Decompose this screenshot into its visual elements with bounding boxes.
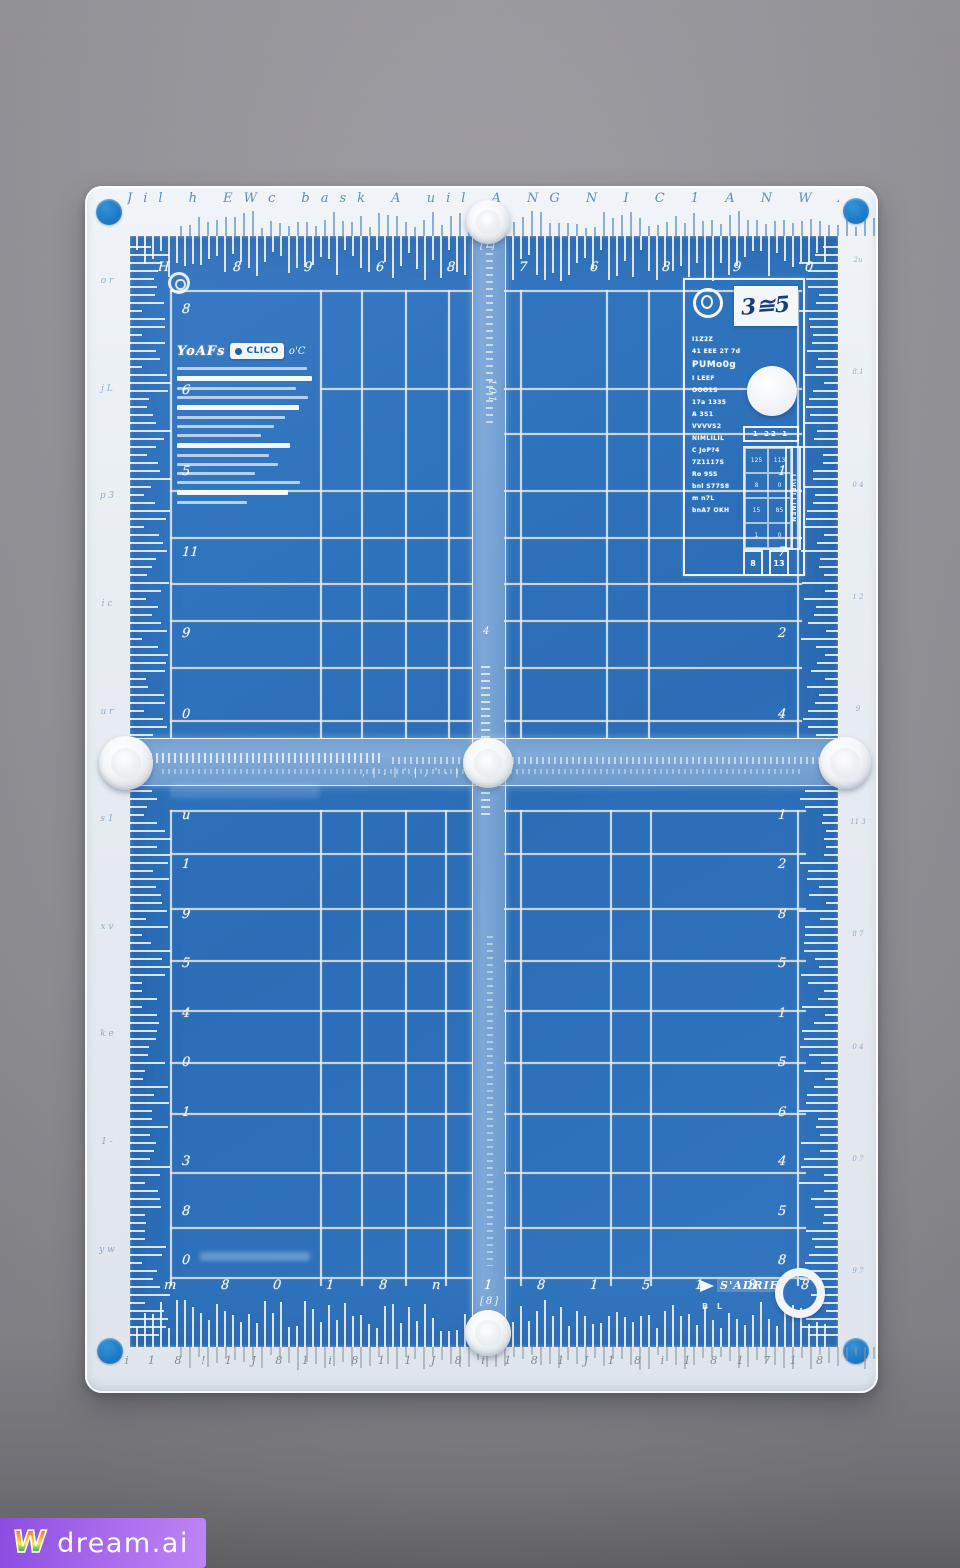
grid-line-vertical [520,290,522,738]
ruler-tick [738,1347,740,1368]
ruler-tick [756,220,758,236]
corner-dot-bottom-left [97,1338,123,1364]
ruler-tick [504,1347,506,1366]
ruler-tick [837,225,839,236]
ruler-tick [225,217,227,236]
grid-line-vertical [650,810,652,1286]
ruler-tick [657,1347,659,1355]
border-script-block: 9 7 [842,1267,874,1276]
registered-ring-mark [168,272,190,294]
info-panel-top-left: YoAFs CLICO o'C [177,343,312,488]
bottom-tag-text: B L [702,1302,725,1311]
ladder-cell: 125 [745,448,768,473]
ruler-tick [234,1347,236,1360]
panel-text-line [177,443,290,448]
ruler-tick [675,1347,677,1365]
ruler-tick [612,218,614,236]
grommet-center [463,738,513,788]
border-script-block: 2u [842,256,874,265]
ruler-tick [216,1347,218,1363]
grid-line-horizontal [170,1062,472,1064]
swoosh-icon [700,1280,714,1292]
grid-line-horizontal [170,1227,472,1229]
corner-mark-text: o'C [289,346,305,357]
border-script-block: 1 2 [842,593,874,602]
border-script-block: 0 4 [842,1043,874,1052]
ruler-tick [387,215,389,236]
grid-line-vertical [170,290,172,738]
ruler-tick [639,218,641,236]
ruler-tick [630,1347,632,1365]
bottom-brand-text: S'ADRIE [717,1279,782,1292]
ruler-tick [423,1347,425,1369]
ruler-tick [279,223,281,236]
spec-mini-box-b: 13 [769,550,789,576]
dream-ai-brand-text: dream.ai [57,1528,189,1559]
big-white-circle [747,366,797,416]
wear-smudge [170,784,320,798]
ladder-cell: 8 [745,473,768,498]
ruler-tick [576,1347,578,1364]
ruler-tick [693,1347,695,1365]
corner-dot-top-left [96,199,122,225]
ruler-tick [558,1347,560,1368]
ruler-tick [819,1347,821,1355]
ruler-tick [711,220,713,236]
ruler-tick [684,223,686,236]
panel-text-line [177,425,274,428]
ruler-tick [567,1347,569,1360]
ruler-tick [351,222,353,236]
ruler-tick [270,1347,272,1355]
grid-line-horizontal [170,853,472,855]
ruler-tick [288,1347,290,1363]
ruler-tick [873,218,875,236]
grid-line-vertical [361,290,363,738]
pill-text: CLICO [246,346,278,356]
ruler-tick [684,1347,686,1369]
grid-line-horizontal [504,620,802,622]
wear-smudge [200,1252,310,1261]
grid-line-horizontal [170,720,472,722]
border-script-block: 8 7 [842,930,874,939]
ruler-tick [729,1347,731,1361]
grid-line-horizontal [504,720,802,722]
circle-logo-icon [693,288,723,318]
brand-pill: CLICO [230,343,283,359]
cutting-mat: Jil h EWc bask A uil A NG N I C 1 A N W … [85,186,878,1393]
grid-line-horizontal [504,1010,806,1012]
handwritten-number: 3≅5 [741,291,792,320]
spec-token: A 3S1 [692,411,754,418]
ruler-tick [333,212,335,236]
ruler-tick [747,1347,749,1367]
grid-line-horizontal [170,1172,472,1174]
grid-line-horizontal [504,908,806,910]
ruler-tick [216,220,218,236]
ruler-tick [207,1347,209,1367]
ruler-tick [387,1347,389,1364]
spec-wide-box: 1 22 1 [743,426,799,442]
ruler-tick [288,226,290,236]
grommet-right-middle [819,737,871,789]
ruler-tick [774,1347,776,1365]
ruler-tick [279,1347,281,1358]
grid-line-vertical [405,290,407,738]
grid-line-vertical [445,810,447,1286]
ruler-tick [414,1347,416,1359]
border-script-block: 0 4 [842,481,874,490]
spec-panel-top-right: 3≅5 I1Z2Z41 EEE 2T 7dPUMo0gI LEEFOOO1S17… [683,278,805,576]
ruler-tick [315,1347,317,1364]
ruler-tick [243,1347,245,1362]
ruler-tick [252,211,254,236]
grid-line-horizontal [504,667,802,669]
ruler-tick [702,221,704,236]
grid-line-horizontal [504,1172,806,1174]
ruler-tick [297,1347,299,1370]
ruler-tick [252,1347,254,1360]
ruler-tick [873,1347,875,1359]
panel-text-line [177,481,300,484]
panel-text-line [177,472,255,475]
grommet-bottom-center [465,1310,511,1356]
ruler-tick [432,1347,434,1356]
panel-text-line [177,490,288,495]
border-script-block: y w [91,1245,123,1256]
ruler-tick [423,220,425,236]
ruler-tick [855,1347,857,1355]
handwritten-number-box: 3≅5 [734,286,798,326]
ruler-tick [297,222,299,236]
ruler-tick [837,1347,839,1366]
ruler-tick [513,1347,515,1357]
ruler-tick [819,221,821,236]
border-script-block: k e [91,1029,123,1040]
ruler-tick [513,222,515,236]
ruler-tick [765,224,767,236]
border-script-block: 8.1 [842,368,874,377]
ruler-tick [639,1347,641,1370]
ruler-tick [540,1347,542,1365]
grid-line-horizontal [170,620,472,622]
ruler-tick [621,215,623,236]
ruler-tick [810,1347,812,1369]
ruler-tick [522,217,524,236]
grid-line-vertical [361,810,363,1286]
ruler-tick [846,1347,848,1361]
ruler-tick [810,219,812,236]
ruler-tick [558,223,560,236]
grid-line-horizontal [504,1062,806,1064]
grid-line-horizontal [504,583,802,585]
ruler-tick [351,1347,353,1366]
border-script-block: 0 7 [842,1155,874,1164]
ruler-tick [360,216,362,236]
ruler-tick [198,1347,200,1357]
ruler-tick [306,222,308,236]
ruler-tick [855,227,857,236]
ruler-tick [531,1347,533,1355]
ruler-tick [828,225,830,236]
grid-line-horizontal [504,810,806,812]
panel-text-line [177,501,247,504]
panel-text-line [177,405,299,410]
ruler-tick [378,1347,380,1357]
ruler-tick [378,213,380,236]
ruler-tick [666,222,668,236]
ruler-tick [414,227,416,236]
panel-header: YoAFs CLICO o'C [177,343,312,359]
panel-text-line [177,396,308,399]
ruler-tick [783,1347,785,1368]
ruler-tick [603,1347,605,1366]
ruler-tick [846,214,848,236]
ruler-tick [531,211,533,236]
ruler-tick [396,216,398,236]
grid-line-horizontal [170,908,472,910]
grid-line-horizontal [170,1113,472,1115]
spec-mini-box-a: 8 [743,550,763,576]
ruler-tick [540,212,542,236]
ruler-tick [576,224,578,236]
ruler-tick [738,211,740,236]
spec-token: 41 EEE 2T 7d [692,348,754,355]
grid-line-horizontal [170,1010,472,1012]
ruler-tick [711,1347,713,1357]
grid-line-vertical [405,810,407,1286]
grid-line-horizontal [170,1277,472,1279]
border-script-block: p 3 [91,491,123,502]
grid-line-horizontal [170,583,472,585]
ruler-tick [612,1347,614,1359]
ruler-tick [729,215,731,236]
ladder-cell: 1 [745,523,768,548]
ruler-tick [792,1347,794,1369]
ruler-tick [189,1347,191,1368]
border-script-block: o r [91,276,123,287]
ruler-tick [234,217,236,236]
panel-text-line [177,367,307,370]
grid-line-horizontal [504,1227,806,1229]
grid-line-horizontal [170,537,472,539]
ruler-tick [468,1347,470,1367]
ruler-tick [675,216,677,236]
ruler-tick [450,1347,452,1364]
grid-line-horizontal [170,960,472,962]
ruler-tick [864,1347,866,1369]
spec-tall-box: LIVELLINEN [785,446,801,550]
dream-ai-logo-icon: W [11,1528,47,1558]
grommet-left-middle [99,736,153,790]
ruler-tick [450,216,452,236]
ruler-tick [243,213,245,236]
ruler-tick [702,1347,704,1358]
grid-line-horizontal [170,290,472,292]
ladder-cell: 15 [745,498,768,523]
grid-line-vertical [320,810,322,1286]
ruler-tick [585,228,587,236]
white-ring-grommet [775,1268,825,1318]
ruler-tick [459,213,461,236]
grid-line-vertical [520,810,522,1286]
ruler-tick [648,1347,650,1369]
border-script-block: s 1 [91,814,123,825]
ruler-tick [441,1347,443,1360]
spec-token: OOO1S [692,387,754,394]
ruler-tick [405,222,407,236]
ruler-tick [828,1347,830,1363]
ruler-tick [567,223,569,236]
spec-token: I LEEF [692,375,754,382]
border-script-block: 9 [842,705,874,714]
panel-text-line [177,463,278,466]
ruler-tick [522,1347,524,1359]
grid-line-vertical [320,290,322,738]
grid-line-horizontal [320,388,472,390]
ruler-tick [801,221,803,236]
ruler-tick [765,1347,767,1363]
dream-ai-watermark: W dream.ai [0,1518,206,1568]
ruler-tick [315,226,317,236]
spec-token: I1Z2Z [692,336,754,343]
grid-line-vertical [170,810,172,1286]
ruler-tick [720,224,722,236]
border-script-block: 11 3 [842,818,874,827]
grid-line-horizontal [504,1113,806,1115]
ruler-tick [432,212,434,236]
panel-text-line [177,454,269,457]
ruler-tick [261,228,263,236]
ruler-tick [207,222,209,236]
ruler-tick [594,227,596,236]
ruler-tick [180,226,182,236]
panel-text-line [177,434,261,437]
panel-text-lines [177,367,312,504]
grid-line-vertical [797,810,799,1286]
ruler-tick [585,1347,587,1360]
ruler-tick [396,1347,398,1369]
ruler-tick [459,1347,461,1367]
ruler-tick [306,1347,308,1362]
border-script-block: j L [91,384,123,395]
grid-line-vertical [610,810,612,1286]
grid-line-horizontal [170,667,472,669]
ruler-tick [333,1347,335,1366]
ruler-tick [180,1347,182,1357]
ruler-tick [324,220,326,236]
spec-token: PUMo0g [692,360,754,370]
ruler-tick [369,1347,371,1366]
ruler-tick [621,1347,623,1359]
ruler-tick [405,1347,407,1357]
pill-dot-icon [235,348,242,355]
ruler-tick [225,1347,227,1359]
ruler-tick [189,225,191,236]
grid-line-horizontal [504,960,806,962]
ruler-tick [720,1347,722,1357]
ruler-tick [693,213,695,236]
grid-line-vertical [606,290,608,738]
ruler-tick [801,1347,803,1358]
panel-text-line [177,387,296,390]
border-script-block: u r [91,707,123,718]
border-script-block: x v [91,922,123,933]
ruler-tick [270,221,272,236]
ruler-tick [342,1347,344,1362]
ruler-tick [198,217,200,236]
ruler-tick [747,220,749,236]
grid-line-horizontal [504,853,806,855]
blue-grid-field: , | . | ' | , ' ˕ | , . | ' , [i] 101 4 … [130,236,838,1347]
ruler-tick [324,1347,326,1368]
grommet-top-center [466,200,510,244]
ruler-tick [594,1347,596,1358]
spec-token: 17a 1335 [692,399,754,406]
ruler-tick [342,221,344,236]
border-script-block: 1 - [91,1137,123,1148]
ruler-tick [657,225,659,236]
ruler-tick [774,221,776,236]
ruler-tick [864,220,866,236]
ruler-tick [261,1347,263,1368]
ruler-tick [666,1347,668,1361]
ruler-tick [441,225,443,236]
ruler-tick [648,226,650,236]
ruler-tick [549,223,551,236]
bottom-brand-logo: S'ADRIE [700,1279,782,1292]
ruler-tick [369,227,371,236]
ruler-tick [792,223,794,236]
panel-text-line [177,376,312,381]
border-script-block: i c [91,599,123,610]
panel-text-line [177,416,285,419]
ruler-tick [603,212,605,236]
grid-line-vertical [648,290,650,738]
grid-line-horizontal [170,810,472,812]
ruler-tick [630,212,632,236]
ruler-tick [549,1347,551,1364]
ruler-tick [783,220,785,236]
brand-text: YoAFs [177,344,225,359]
ruler-tick [756,1347,758,1360]
ruler-tick [360,1347,362,1368]
grid-line-vertical [448,290,450,738]
